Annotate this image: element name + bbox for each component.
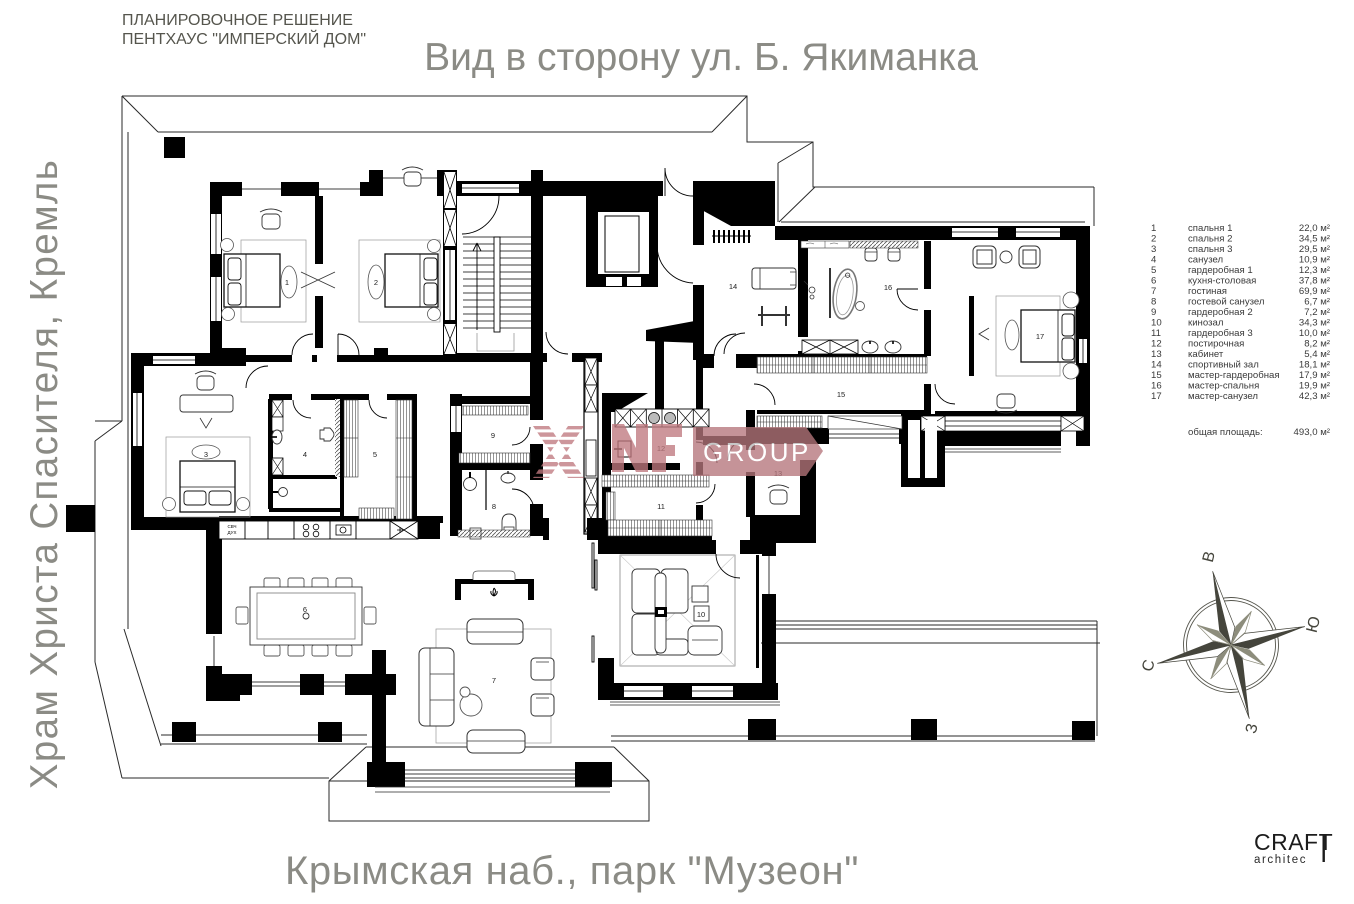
- svg-text:12,3 м²: 12,3 м²: [1299, 265, 1331, 276]
- svg-text:11: 11: [1151, 328, 1161, 339]
- svg-text:17: 17: [1151, 391, 1162, 402]
- svg-text:13: 13: [1151, 349, 1162, 360]
- svg-text:8,2 м²: 8,2 м²: [1304, 339, 1331, 350]
- svg-text:69,9 м²: 69,9 м²: [1299, 286, 1331, 297]
- svg-text:8: 8: [492, 502, 496, 511]
- svg-text:11: 11: [657, 502, 665, 511]
- svg-text:19,9 м²: 19,9 м²: [1299, 381, 1331, 392]
- svg-text:14: 14: [1151, 360, 1162, 371]
- svg-text:кухня-столовая: кухня-столовая: [1188, 276, 1256, 287]
- svg-text:4: 4: [1151, 255, 1157, 266]
- svg-text:гостиная: гостиная: [1188, 286, 1227, 297]
- svg-text:15: 15: [1151, 370, 1162, 381]
- svg-text:17: 17: [1036, 332, 1044, 341]
- svg-text:постирочная: постирочная: [1188, 339, 1244, 350]
- svg-text:4: 4: [303, 450, 307, 459]
- svg-text:15: 15: [837, 390, 845, 399]
- svg-text:9: 9: [1151, 307, 1156, 318]
- svg-text:5: 5: [373, 450, 377, 459]
- svg-text:1: 1: [1151, 223, 1156, 234]
- svg-text:гардеробная 2: гардеробная 2: [1188, 307, 1253, 318]
- svg-text:34,3 м²: 34,3 м²: [1299, 318, 1331, 329]
- svg-text:гардеробная 1: гардеробная 1: [1188, 265, 1253, 276]
- svg-text:общая площадь:: общая площадь:: [1188, 427, 1263, 438]
- svg-text:29,5 м²: 29,5 м²: [1299, 244, 1331, 255]
- svg-text:16: 16: [1151, 381, 1162, 392]
- svg-text:architec: architec: [1254, 854, 1307, 866]
- svg-text:спальня 1: спальня 1: [1188, 223, 1232, 234]
- svg-text:10,9 м²: 10,9 м²: [1299, 255, 1331, 266]
- svg-text:мастер-спальня: мастер-спальня: [1188, 381, 1259, 392]
- svg-text:8: 8: [1151, 297, 1156, 308]
- svg-text:Храм Христа Спасителя, Кремль: Храм Христа Спасителя, Кремль: [23, 159, 66, 790]
- svg-text:10: 10: [1151, 318, 1162, 329]
- svg-text:кинозал: кинозал: [1188, 318, 1223, 329]
- svg-text:санузел: санузел: [1188, 255, 1223, 266]
- svg-text:18,1 м²: 18,1 м²: [1299, 360, 1331, 371]
- svg-text:5: 5: [1151, 265, 1156, 276]
- svg-text:6: 6: [303, 605, 307, 614]
- svg-text:ПЛАНИРОВОЧНОЕ РЕШЕНИЕ: ПЛАНИРОВОЧНОЕ РЕШЕНИЕ: [122, 12, 353, 29]
- svg-text:гардеробная 3: гардеробная 3: [1188, 328, 1253, 339]
- svg-text:42,3 м²: 42,3 м²: [1299, 391, 1331, 402]
- svg-text:16: 16: [884, 283, 892, 292]
- svg-text:3: 3: [204, 450, 208, 459]
- svg-text:СВЧ: СВЧ: [227, 524, 236, 529]
- svg-text:34,5 м²: 34,5 м²: [1299, 234, 1331, 245]
- svg-text:6: 6: [1151, 276, 1156, 287]
- svg-text:17,9 м²: 17,9 м²: [1299, 370, 1331, 381]
- svg-text:10,0 м²: 10,0 м²: [1299, 328, 1331, 339]
- svg-text:Крымская наб., парк "Музеон": Крымская наб., парк "Музеон": [285, 849, 859, 893]
- svg-text:12: 12: [1151, 339, 1162, 350]
- svg-text:10: 10: [697, 610, 705, 619]
- svg-text:22,0 м²: 22,0 м²: [1299, 223, 1331, 234]
- svg-text:2: 2: [1151, 234, 1156, 245]
- svg-text:5,4 м²: 5,4 м²: [1304, 349, 1331, 360]
- svg-text:6,7 м²: 6,7 м²: [1304, 297, 1331, 308]
- svg-text:2: 2: [374, 278, 378, 287]
- svg-text:Вид в сторону ул. Б. Якиманка: Вид в сторону ул. Б. Якиманка: [424, 36, 978, 79]
- svg-text:спальня 2: спальня 2: [1188, 234, 1232, 245]
- svg-text:GROUP: GROUP: [703, 437, 811, 467]
- svg-text:14: 14: [729, 282, 737, 291]
- svg-text:ПЕНТХАУС "ИМПЕРСКИЙ ДОМ": ПЕНТХАУС "ИМПЕРСКИЙ ДОМ": [122, 29, 366, 48]
- svg-text:7,2 м²: 7,2 м²: [1304, 307, 1331, 318]
- svg-text:9: 9: [491, 431, 495, 440]
- svg-text:кабинет: кабинет: [1188, 349, 1224, 360]
- svg-text:7: 7: [1151, 286, 1156, 297]
- svg-text:37,8 м²: 37,8 м²: [1299, 276, 1331, 287]
- svg-text:ДУХ: ДУХ: [228, 530, 237, 535]
- svg-text:CRAFT: CRAFT: [1254, 829, 1333, 855]
- svg-text:3: 3: [1151, 244, 1156, 255]
- svg-text:спортивный зал: спортивный зал: [1188, 360, 1259, 371]
- svg-text:спальня 3: спальня 3: [1188, 244, 1232, 255]
- svg-text:мастер-санузел: мастер-санузел: [1188, 391, 1258, 402]
- svg-text:мастер-гардеробная: мастер-гардеробная: [1188, 370, 1280, 381]
- svg-text:493,0 м²: 493,0 м²: [1294, 427, 1331, 438]
- svg-text:1: 1: [285, 278, 289, 287]
- svg-text:7: 7: [492, 676, 496, 685]
- svg-text:гостевой санузел: гостевой санузел: [1188, 297, 1265, 308]
